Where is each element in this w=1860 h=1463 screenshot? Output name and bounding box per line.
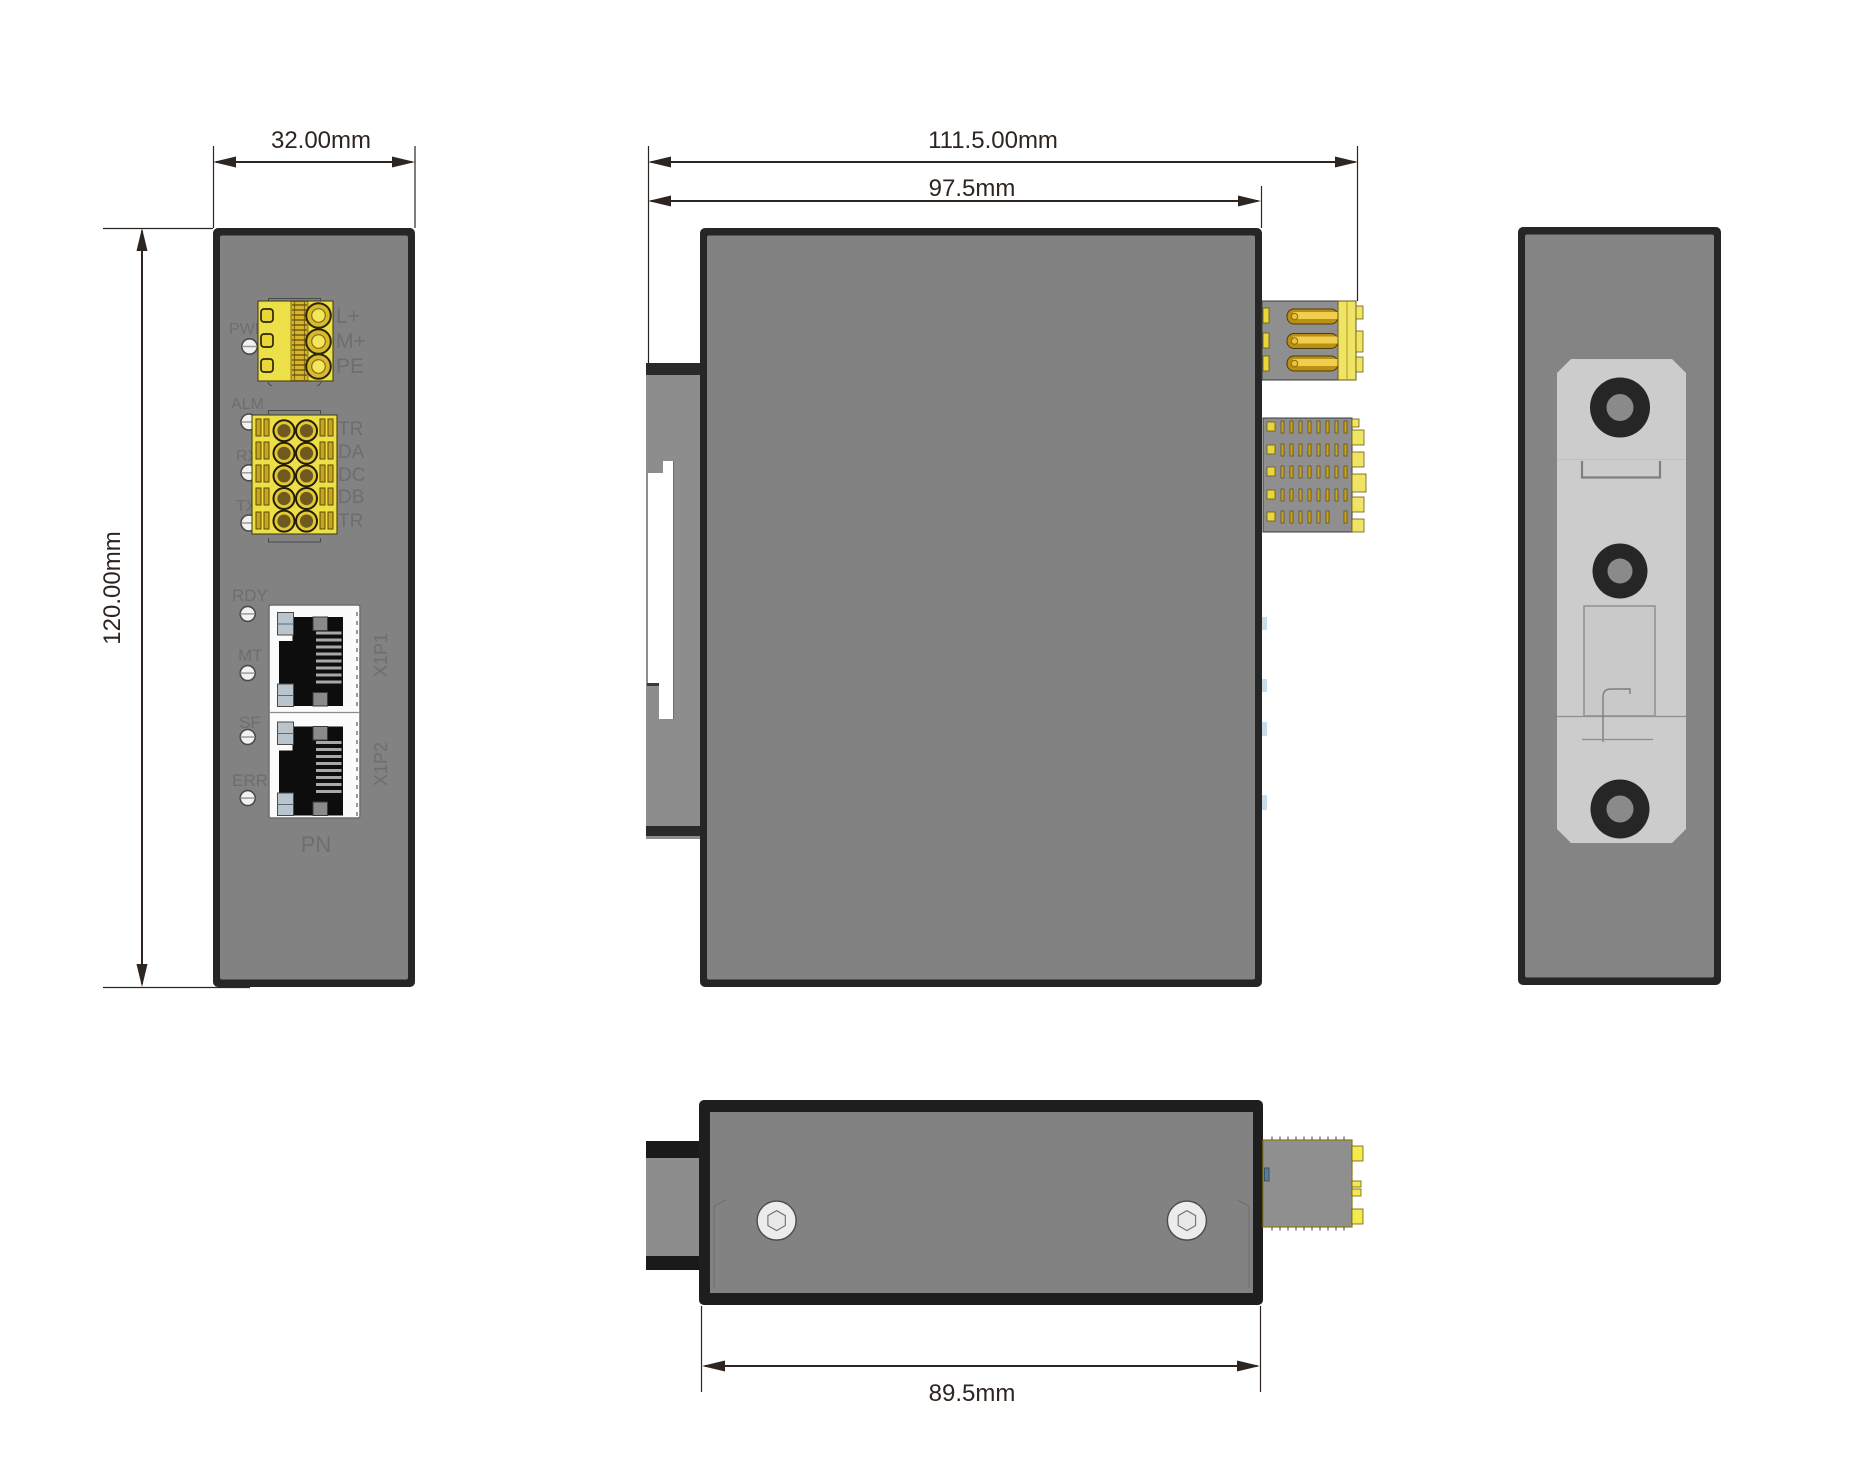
svg-text:97.5mm: 97.5mm bbox=[929, 175, 1016, 202]
svg-text:32.00mm: 32.00mm bbox=[271, 127, 371, 154]
svg-text:111.5.00mm: 111.5.00mm bbox=[928, 127, 1058, 154]
svg-text:PE: PE bbox=[336, 355, 364, 378]
svg-text:120.00mm: 120.00mm bbox=[99, 531, 126, 644]
svg-text:M+: M+ bbox=[336, 330, 366, 353]
svg-text:PN: PN bbox=[301, 832, 332, 857]
svg-text:MT: MT bbox=[238, 646, 263, 665]
svg-text:DC: DC bbox=[338, 465, 365, 486]
svg-text:ERR: ERR bbox=[232, 771, 268, 790]
svg-text:ALM: ALM bbox=[231, 396, 264, 413]
svg-text:L+: L+ bbox=[336, 305, 360, 328]
svg-text:TR: TR bbox=[338, 419, 363, 440]
svg-text:X1P2: X1P2 bbox=[371, 742, 391, 786]
svg-text:X1P1: X1P1 bbox=[371, 633, 391, 677]
svg-text:DB: DB bbox=[338, 487, 364, 508]
svg-text:TR: TR bbox=[338, 511, 363, 532]
svg-text:RDY: RDY bbox=[232, 586, 268, 605]
svg-text:89.5mm: 89.5mm bbox=[929, 1380, 1016, 1407]
svg-text:DA: DA bbox=[338, 442, 365, 463]
